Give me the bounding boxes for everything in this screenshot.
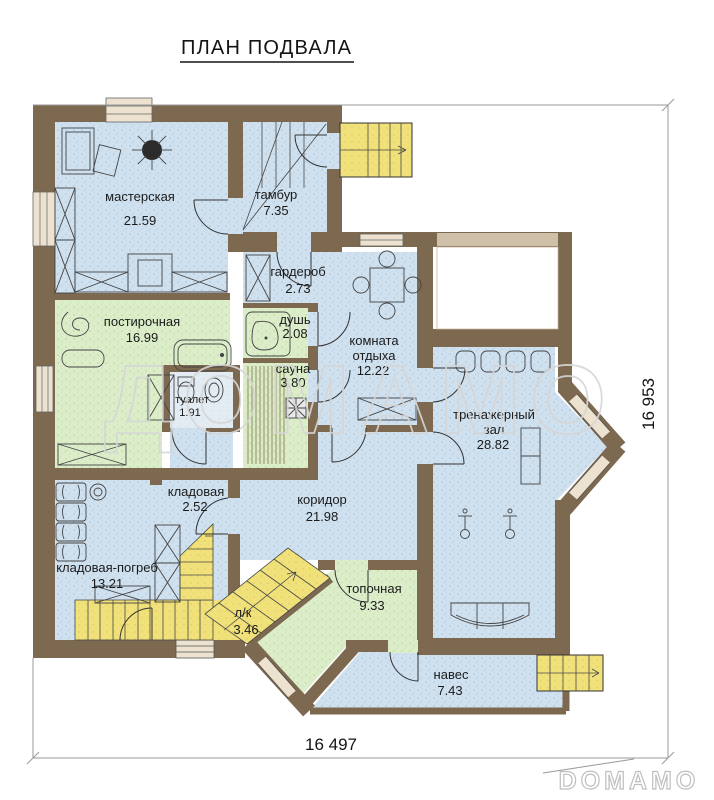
label-koridor: коридор: [297, 492, 347, 507]
dimension-width: 16 497: [305, 735, 357, 754]
basement-floor-plan: мастерская 21.59 тамбур 7.35 гардероб 2.…: [0, 0, 714, 800]
dimension-height: 16 953: [639, 378, 658, 430]
label-lk: л/к: [235, 605, 252, 620]
label-masterskaya-area: 21.59: [124, 213, 157, 228]
window-left-lower: [36, 366, 53, 412]
entrance-door-bottom: [176, 640, 214, 658]
exterior-stair-bottom: [537, 655, 603, 691]
label-tambur-area: 7.35: [263, 203, 288, 218]
brand-logo: DOMAMO: [559, 767, 700, 795]
lightwell-edge: [437, 233, 558, 246]
label-pogreb-area: 13.21: [91, 576, 124, 591]
label-garderob-area: 2.73: [285, 281, 310, 296]
window-left-upper: [33, 192, 55, 246]
label-garderob: гардероб: [270, 264, 325, 279]
label-topochnaya: топочная: [346, 581, 401, 596]
label-dush-area: 2.08: [282, 326, 307, 341]
plan-canvas: мастерская 21.59 тамбур 7.35 гардероб 2.…: [0, 0, 714, 800]
page-title: ПЛАН ПОДВАЛА: [181, 37, 352, 59]
label-lk-area: 3.46: [233, 622, 258, 637]
label-tambur: тамбур: [255, 187, 298, 202]
label-koridor-area: 21.98: [306, 509, 339, 524]
label-naves-area: 7.43: [437, 683, 462, 698]
watermark: ДОМАМО: [104, 345, 616, 454]
label-postirochnaya-area: 16.99: [126, 330, 159, 345]
lightwell: [437, 247, 558, 329]
label-dush: душь: [279, 312, 311, 327]
label-kladovaya-area: 2.52: [182, 499, 207, 514]
window-top-masterskaya: [106, 98, 152, 122]
label-kladovaya: кладовая: [168, 484, 225, 499]
label-naves: навес: [434, 667, 469, 682]
exterior-stair-top: [340, 123, 412, 177]
room-masterskaya-floor: [55, 122, 228, 293]
label-topochnaya-area: 9.33: [359, 598, 384, 613]
window-lightwell: [360, 234, 403, 246]
lk-stair-bottom: [75, 600, 213, 640]
label-postirochnaya: постирочная: [104, 314, 180, 329]
label-masterskaya: мастерская: [105, 189, 175, 204]
plant-icon: [132, 130, 172, 170]
label-pogreb: кладовая-погреб: [56, 560, 158, 575]
